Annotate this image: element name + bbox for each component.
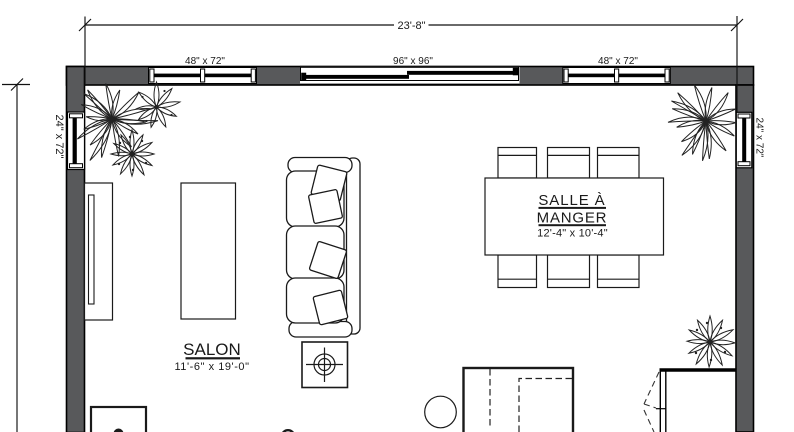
svg-text:96" x 96": 96" x 96" (393, 56, 433, 67)
svg-text:SALON: SALON (183, 340, 241, 359)
svg-text:48" x 72": 48" x 72" (598, 56, 638, 67)
svg-text:48" x 72": 48" x 72" (185, 56, 225, 67)
svg-text:23'-8": 23'-8" (397, 20, 425, 32)
svg-text:24" x 72": 24" x 72" (754, 118, 765, 158)
svg-text:12'-4" x 10'-4": 12'-4" x 10'-4" (537, 228, 608, 240)
svg-text:MANGER: MANGER (537, 210, 608, 227)
svg-text:SALLE À: SALLE À (538, 192, 605, 209)
svg-text:11'-6" x 19'-0": 11'-6" x 19'-0" (174, 361, 249, 373)
svg-text:24" x 72": 24" x 72" (53, 115, 65, 159)
